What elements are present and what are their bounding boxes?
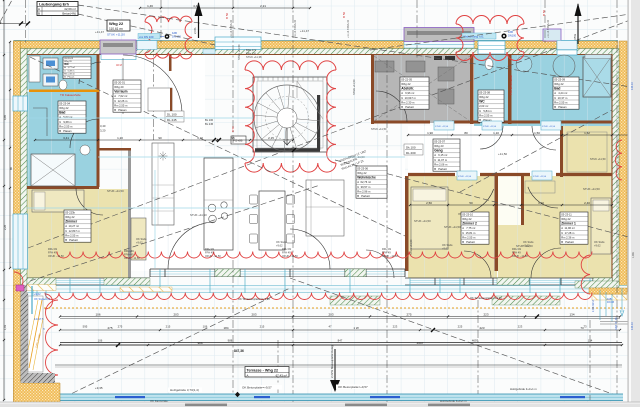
svg-text:B 50: B 50	[342, 11, 346, 18]
svg-text:134: 134	[569, 312, 574, 316]
svg-text:STUK +11,50: STUK +11,50	[444, 225, 461, 229]
svg-text:WC: WC	[64, 62, 69, 66]
svg-text:203: 203	[328, 312, 333, 316]
svg-text:Beton(4N): Beton(4N)	[62, 12, 76, 16]
svg-text:Rm 2,55 m: Rm 2,55 m	[65, 233, 79, 237]
svg-text:A 11,96 m²: A 11,96 m²	[561, 226, 575, 230]
svg-text:+9,62: +9,62	[34, 292, 41, 296]
svg-text:B Parkett: B Parkett	[561, 240, 574, 244]
svg-text:+11,13 STAB+40: +11,13 STAB+40	[294, 19, 297, 38]
svg-text:A: A	[38, 7, 40, 11]
svg-text:106: 106	[98, 339, 103, 343]
svg-text:+11,47: +11,47	[95, 30, 104, 34]
svg-text:+11,50: +11,50	[498, 152, 507, 156]
svg-text:Rm 2,96 m: Rm 2,96 m	[357, 189, 371, 193]
svg-text:847,36: 847,36	[234, 349, 244, 353]
svg-text:TR Herren/Zelle: TR Herren/Zelle	[509, 75, 513, 95]
svg-text:4697: 4697	[472, 339, 479, 343]
svg-text:Terrasse - Whg 22: Terrasse - Whg 22	[247, 369, 279, 373]
svg-text:B Plasan: B Plasan	[64, 77, 75, 79]
svg-text:OFUK −11,50: OFUK −11,50	[48, 254, 64, 258]
svg-text:988: 988	[228, 339, 233, 343]
svg-text:275: 275	[118, 325, 123, 329]
svg-text:Rm 2,06 m: Rm 2,06 m	[434, 162, 448, 166]
svg-text:+9,62: +9,62	[442, 247, 449, 251]
svg-text:+11,13 STAB+40: +11,13 STAB+40	[230, 19, 233, 38]
svg-text:DN100: DN100	[508, 34, 517, 38]
svg-text:184: 184	[223, 326, 228, 330]
svg-text:Rm 2,55 m: Rm 2,55 m	[479, 113, 493, 117]
svg-text:OFUK −11,50: OFUK −11,50	[205, 254, 221, 258]
svg-text:U 10,37 m: U 10,37 m	[554, 96, 568, 100]
svg-text:1,10: 1,10	[493, 131, 499, 135]
svg-text:1 W: 1 W	[353, 326, 359, 330]
svg-text:STUK +11,50: STUK +11,50	[371, 127, 387, 131]
svg-text:42,69 m²: 42,69 m²	[64, 7, 76, 11]
svg-text:106: 106	[203, 325, 208, 329]
svg-text:U 11,07 m: U 11,07 m	[434, 158, 448, 162]
svg-text:+9,62: +9,62	[44, 298, 51, 301]
svg-text:110,61 m²: 110,61 m²	[109, 27, 123, 31]
svg-text:STUK +11,50: STUK +11,50	[107, 189, 124, 193]
svg-text:BL 100: BL 100	[205, 118, 214, 122]
svg-text:03-23-09: 03-23-09	[554, 77, 565, 81]
svg-text:FFH+49: FFH+49	[124, 253, 134, 257]
svg-text:95: 95	[231, 136, 235, 140]
svg-text:+11,47: +11,47	[300, 29, 309, 33]
svg-text:OK Betonplatte=+9,57: OK Betonplatte=+9,57	[242, 386, 272, 390]
svg-text:Bad: Bad	[59, 111, 65, 115]
svg-text:B: B	[38, 12, 40, 16]
svg-text:Whg 23: Whg 23	[434, 144, 444, 148]
svg-text:STUK +11,50: STUK +11,50	[107, 33, 125, 37]
svg-text:223: 223	[518, 325, 523, 329]
svg-text:90: 90	[158, 136, 162, 140]
svg-text:RFH+49: RFH+49	[124, 249, 134, 253]
svg-text:1,62: 1,62	[584, 131, 590, 135]
svg-text:215: 215	[166, 325, 171, 329]
svg-text:275: 275	[107, 326, 112, 330]
svg-text:A 6,15 m²: A 6,15 m²	[434, 153, 447, 157]
svg-text:OK Stufe: OK Stufe	[34, 297, 45, 301]
svg-text:xxx DN 100: xxx DN 100	[139, 35, 154, 39]
svg-text:225: 225	[458, 325, 463, 329]
svg-text:Rm 2,55 m: Rm 2,55 m	[114, 103, 128, 107]
svg-text:B Parkett: B Parkett	[401, 105, 414, 109]
svg-text:FFH 49: FFH 49	[282, 251, 291, 255]
svg-text:03-223b: 03-223b	[65, 210, 75, 214]
svg-text:STUK +11,50: STUK +11,50	[533, 176, 547, 178]
svg-text:B Plasan: B Plasan	[554, 105, 567, 109]
svg-text:Rm 2,55 m: Rm 2,55 m	[462, 235, 476, 239]
svg-text:Laubengang Erh: Laubengang Erh	[39, 3, 70, 7]
svg-text:Zimmer: Zimmer	[65, 220, 78, 224]
svg-text:Rm 2,55 m: Rm 2,55 m	[59, 124, 73, 128]
svg-text:STUK +11,50: STUK +11,50	[414, 219, 431, 223]
svg-text:1,50: 1,50	[534, 131, 540, 135]
svg-text:1,10: 1,10	[538, 201, 544, 205]
svg-text:DL 100: DL 100	[167, 113, 177, 117]
svg-text:73: 73	[583, 325, 587, 329]
svg-text:14×17,5: 14×17,5	[34, 317, 44, 321]
svg-text:STUK +11,50: STUK +11,50	[583, 187, 600, 191]
svg-text:3,40: 3,40	[100, 124, 106, 128]
svg-text:RFH 49: RFH 49	[282, 247, 291, 251]
svg-text:Whg 22: Whg 22	[561, 217, 571, 221]
svg-text:Rm 2,55 m: Rm 2,55 m	[554, 100, 568, 104]
svg-text:215: 215	[260, 325, 265, 329]
svg-text:A 10,27 m²: A 10,27 m²	[65, 224, 79, 228]
svg-text:A 62,76 m²: A 62,76 m²	[357, 180, 371, 184]
svg-text:Wohnküche: Wohnküche	[357, 176, 376, 180]
svg-text:STUK +11,50: STUK +11,50	[542, 126, 556, 128]
svg-text:FFH 49: FFH 49	[512, 251, 521, 255]
svg-text:203: 203	[251, 312, 256, 316]
svg-text:988: 988	[197, 341, 202, 345]
svg-text:03-20-03: 03-20-03	[64, 58, 74, 60]
svg-text:STUK +11,50: STUK +11,50	[435, 126, 449, 128]
svg-text:A 5,63 m²: A 5,63 m²	[59, 115, 72, 119]
svg-text:Holzgeböde 3,73(1,4): Holzgeböde 3,73(1,4)	[170, 388, 199, 392]
svg-text:Zimmer 2: Zimmer 2	[462, 222, 477, 226]
svg-text:B Parkett: B Parkett	[462, 240, 475, 244]
svg-text:OFUK −11,50: OFUK −11,50	[124, 256, 140, 260]
svg-text:Whg 22: Whg 22	[479, 95, 489, 99]
svg-text:B Plasan: B Plasan	[114, 108, 127, 112]
svg-text:Vorraum: Vorraum	[114, 90, 127, 94]
svg-text:BPa 471: BPa 471	[246, 48, 257, 52]
svg-text:Rm 2,36 m: Rm 2,36 m	[561, 235, 575, 239]
svg-text:OK Stufe: OK Stufe	[276, 240, 287, 244]
svg-text:FAB: FAB	[172, 31, 177, 35]
svg-text:OK Terrassenplatten=+9,60: OK Terrassenplatten=+9,60	[470, 296, 502, 300]
svg-text:RAB DN 70: RAB DN 70	[615, 317, 618, 330]
svg-text:223: 223	[479, 326, 484, 330]
svg-text:OFUK −11,50: OFUK −11,50	[512, 254, 528, 258]
svg-text:1,46: 1,46	[147, 4, 153, 8]
svg-text:Rm 2,55 m: Rm 2,55 m	[64, 73, 75, 75]
svg-text:Holzgeböde 3+3+1 m: Holzgeböde 3+3+1 m	[510, 387, 537, 391]
svg-text:U 12,847 m: U 12,847 m	[65, 229, 80, 233]
svg-text:B 50: B 50	[231, 126, 235, 132]
svg-text:+11,13 STAB+40: +11,13 STAB+40	[547, 19, 550, 38]
svg-text:106: 106	[95, 312, 100, 316]
svg-text:OFUK −11,50: OFUK −11,50	[382, 254, 398, 258]
svg-text:223: 223	[393, 325, 398, 329]
svg-text:4,85: 4,85	[3, 114, 7, 120]
svg-text:275: 275	[406, 312, 411, 316]
svg-text:+11,13 STAB+40: +11,13 STAB+40	[347, 19, 350, 38]
svg-text:2,0%: 2,0%	[193, 27, 197, 34]
svg-text:Gang: Gang	[434, 149, 442, 153]
svg-text:Whg 22: Whg 22	[59, 106, 69, 110]
svg-text:223: 223	[483, 312, 488, 316]
svg-text:OK Stufe: OK Stufe	[442, 243, 453, 247]
svg-text:50: 50	[469, 201, 473, 205]
svg-text:B Plasan: B Plasan	[59, 129, 72, 133]
svg-text:1,93: 1,93	[3, 324, 7, 330]
svg-text:STUK +11,50: STUK +11,50	[483, 126, 497, 128]
svg-text:U 5,84 m: U 5,84 m	[479, 109, 492, 113]
svg-text:DN 1B: DN 1B	[607, 301, 614, 304]
svg-text:2,03 m²: 2,03 m²	[479, 104, 488, 108]
svg-text:+9,62: +9,62	[136, 241, 143, 245]
svg-text:2,0% 30/14: 2,0% 30/14	[592, 299, 595, 312]
svg-text:Whg 22: Whg 22	[357, 171, 367, 175]
svg-text:STUK +11,50: STUK +11,50	[352, 79, 356, 95]
svg-text:A 7,75 m²: A 7,75 m²	[462, 226, 475, 230]
svg-text:OFUK −11,50: OFUK −11,50	[282, 254, 298, 258]
svg-text:Whg 20: Whg 20	[114, 85, 124, 89]
svg-text:Whg 22: Whg 22	[109, 21, 124, 26]
svg-text:2,15: 2,15	[268, 136, 274, 140]
svg-text:Whg 22: Whg 22	[462, 217, 472, 221]
svg-text:B Parkett: B Parkett	[434, 167, 447, 171]
svg-text:2,22% Niveauplattenbelag: 2,22% Niveauplattenbelag	[330, 345, 334, 378]
svg-text:03-20-01: 03-20-01	[114, 80, 125, 84]
svg-text:Whg 22: Whg 22	[554, 82, 564, 86]
svg-text:TR Kakau/Zelle: TR Kakau/Zelle	[60, 93, 81, 97]
svg-text:2,26: 2,26	[3, 224, 7, 230]
svg-text:3,20: 3,20	[100, 129, 106, 133]
svg-text:67,43 m²: 67,43 m²	[276, 374, 287, 378]
svg-text:Abstellr.: Abstellr.	[401, 87, 414, 91]
svg-text:Dk 100: Dk 100	[406, 146, 416, 150]
svg-text:B Parkett: B Parkett	[357, 194, 370, 198]
svg-text:FFH 49: FFH 49	[205, 251, 214, 255]
svg-text:RFH 49: RFH 49	[48, 247, 57, 251]
svg-text:A: A	[247, 374, 249, 378]
svg-text:STUK +11,50: STUK +11,50	[516, 244, 533, 248]
svg-text:2,40: 2,40	[584, 201, 590, 205]
svg-text:+9,62: +9,62	[276, 244, 283, 248]
svg-text:OK Terrassenplatten=+9,60: OK Terrassenplatten=+9,60	[238, 297, 270, 301]
svg-text:1,90: 1,90	[427, 131, 433, 135]
svg-text:Zimmer 1: Zimmer 1	[561, 222, 576, 226]
svg-text:03-23-04: 03-23-04	[59, 101, 70, 105]
svg-text:STUK +11,50: STUK +11,50	[409, 239, 413, 255]
svg-text:PPa 126: PPa 126	[246, 52, 257, 56]
svg-text:80: 80	[464, 131, 468, 135]
svg-text:STUK +11,50: STUK +11,50	[458, 176, 472, 178]
svg-text:A 4,24 m²: A 4,24 m²	[554, 91, 567, 95]
svg-text:203: 203	[173, 312, 178, 316]
svg-text:A 6,96 m²: A 6,96 m²	[401, 91, 414, 95]
svg-text:14h 10: 14h 10	[630, 322, 634, 330]
svg-text:B 50: B 50	[225, 12, 229, 19]
svg-text:Abdichtung n.E.: Abdichtung n.E.	[463, 35, 484, 39]
svg-text:03-23-07: 03-23-07	[434, 139, 445, 143]
svg-text:B Parkett: B Parkett	[65, 238, 78, 242]
svg-text:47: 47	[328, 325, 332, 329]
svg-text:FFH 49: FFH 49	[382, 251, 391, 255]
svg-text:2,21: 2,21	[260, 4, 266, 8]
svg-text:1,20: 1,20	[117, 136, 123, 140]
svg-text:U 5,39 m: U 5,39 m	[64, 70, 74, 72]
svg-text:OK Stufe: OK Stufe	[594, 240, 605, 244]
svg-text:847: 847	[338, 339, 343, 343]
svg-text:A 7,62 m²: A 7,62 m²	[114, 94, 127, 98]
svg-text:STUK +11,38: STUK +11,38	[246, 55, 262, 59]
svg-text:STUK +11,50: STUK +11,50	[590, 157, 606, 161]
svg-text:Bad: Bad	[554, 87, 560, 91]
svg-text:U 9,68 m: U 9,68 m	[59, 120, 72, 124]
svg-text:OK Stufe: OK Stufe	[136, 237, 147, 241]
svg-text:2,50: 2,50	[426, 201, 432, 205]
svg-text:03-22-05: 03-22-05	[401, 77, 412, 81]
svg-text:U 10,647 m: U 10,647 m	[401, 96, 416, 100]
svg-text:03-23-08: 03-23-08	[479, 90, 490, 94]
svg-text:DL 200: DL 200	[406, 151, 416, 155]
svg-text:1,001: 1,001	[632, 251, 635, 258]
svg-text:Rm 2,30 m: Rm 2,30 m	[401, 100, 415, 104]
svg-text:595: 595	[83, 325, 88, 329]
svg-text:3,10: 3,10	[197, 136, 203, 140]
svg-text:DL 245: DL 245	[167, 118, 177, 122]
svg-text:A 1,77 m²: A 1,77 m²	[64, 66, 75, 69]
svg-text:B 50: B 50	[542, 9, 546, 16]
svg-text:FFH 49: FFH 49	[48, 251, 57, 255]
svg-text:BL 245: BL 245	[205, 122, 214, 126]
svg-text:+9,35: +9,35	[95, 386, 103, 390]
svg-text:03-23-10: 03-23-10	[462, 212, 473, 216]
svg-text:U 17,28 m: U 17,28 m	[561, 231, 575, 235]
svg-text:RFH 49: RFH 49	[205, 247, 214, 251]
svg-text:03-23-11: 03-23-11	[561, 212, 572, 216]
svg-text:40 M: 40 M	[116, 63, 122, 67]
svg-text:STUK +11,50: STUK +11,50	[190, 213, 207, 217]
svg-text:+9,62: +9,62	[594, 244, 601, 248]
svg-text:WC: WC	[479, 100, 485, 104]
svg-text:4697: 4697	[417, 341, 424, 345]
svg-text:STUK +11,50: STUK +11,50	[237, 44, 241, 60]
svg-text:Whg 22: Whg 22	[401, 82, 411, 86]
svg-text:U 15,81 m: U 15,81 m	[462, 231, 476, 235]
svg-text:14h 10: 14h 10	[630, 82, 634, 90]
svg-text:3,41: 3,41	[63, 136, 69, 140]
svg-text:OK Betonplatte=+9,57: OK Betonplatte=+9,57	[338, 385, 368, 389]
svg-text:03-23-06: 03-23-06	[357, 166, 368, 170]
svg-text:Whg 22: Whg 22	[65, 215, 75, 219]
svg-text:U 39,57 m: U 39,57 m	[357, 185, 371, 189]
svg-text:RFH 49: RFH 49	[382, 247, 391, 251]
svg-text:U 12,26 m: U 12,26 m	[114, 99, 128, 103]
